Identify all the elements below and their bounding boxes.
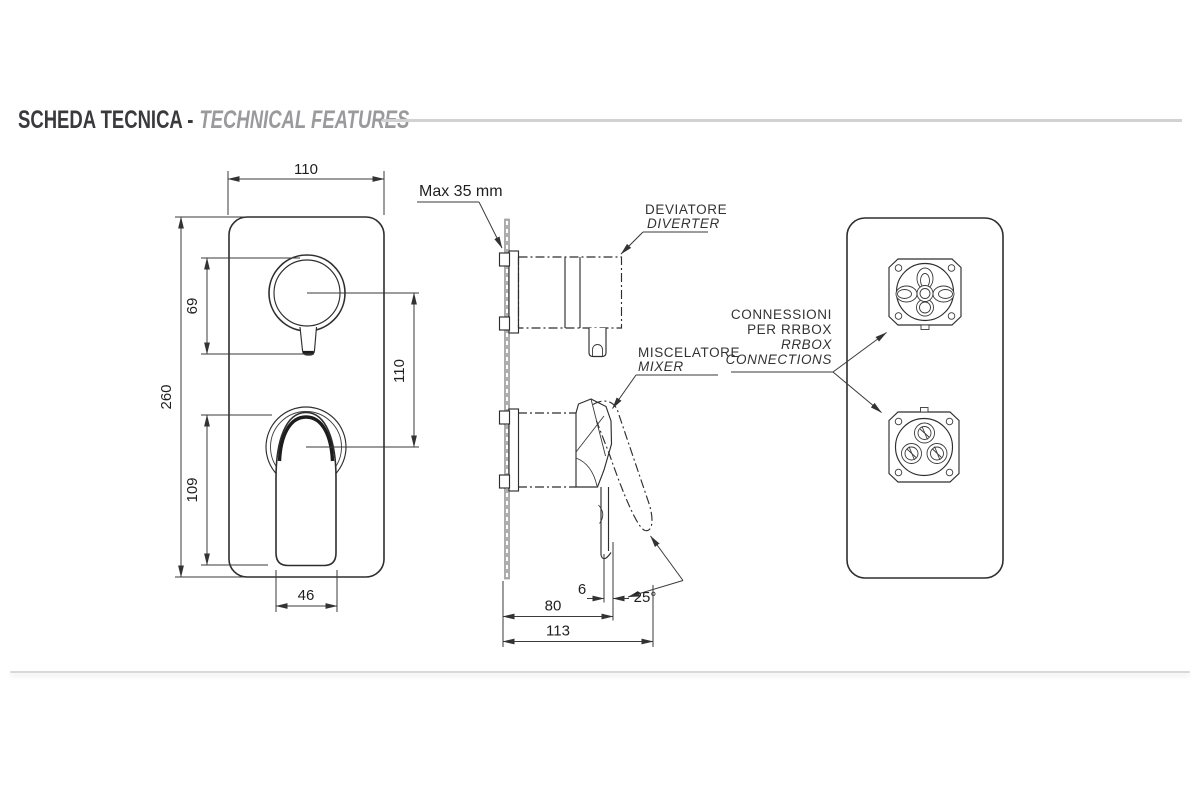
- back-view: CONNESSIONI PER RRBOX RRBOX CONNECTIONS: [726, 218, 1003, 578]
- diverter-label-it: DEVIATORE: [645, 202, 727, 217]
- dim-knob-height-label: 69: [184, 298, 201, 315]
- page-bottom-divider: [10, 671, 1190, 673]
- dim-front-width-label: 110: [294, 161, 318, 178]
- mixer-label: MISCELATORE MIXER: [613, 345, 741, 409]
- connections-label-it-2: PER RRBOX: [747, 322, 832, 337]
- dim-front-height-label: 260: [158, 384, 175, 409]
- connections-label-en-1: RRBOX: [781, 337, 832, 352]
- dim-front-width: 110: [228, 161, 384, 215]
- dim-offset-label: 6: [578, 581, 586, 598]
- dim-center-distance-label: 110: [391, 359, 408, 383]
- technical-drawing: 110 260 69 110 109: [0, 0, 1200, 800]
- dim-lever-height-label: 109: [184, 477, 201, 502]
- mixer-connection-box: [889, 408, 959, 483]
- mixer-side: [500, 399, 653, 559]
- dim-depth-body-label: 80: [545, 598, 562, 615]
- diverter-knob-tab: [300, 327, 317, 355]
- side-view: Max 35 mm DEVIATORE DIVERTER: [417, 183, 740, 647]
- wall-note: Max 35 mm: [417, 183, 503, 248]
- diverter-label-en: DIVERTER: [647, 216, 720, 231]
- diverter-label: DEVIATORE DIVERTER: [621, 202, 727, 254]
- mixer-label-en: MIXER: [638, 359, 684, 374]
- front-view: 110 260 69 110 109: [158, 161, 419, 612]
- dim-angle: 25°: [628, 536, 683, 606]
- dim-offset: 6: [578, 542, 629, 621]
- diverter-side: [500, 251, 622, 357]
- dim-lever-width-label: 46: [298, 587, 315, 604]
- connections-label-en-2: CONNECTIONS: [726, 352, 832, 367]
- diverter-connection-box: [889, 259, 961, 330]
- connections-label-it-1: CONNESSIONI: [731, 307, 832, 322]
- wall-note-label: Max 35 mm: [419, 183, 503, 200]
- dim-depth-total-label: 113: [546, 623, 570, 640]
